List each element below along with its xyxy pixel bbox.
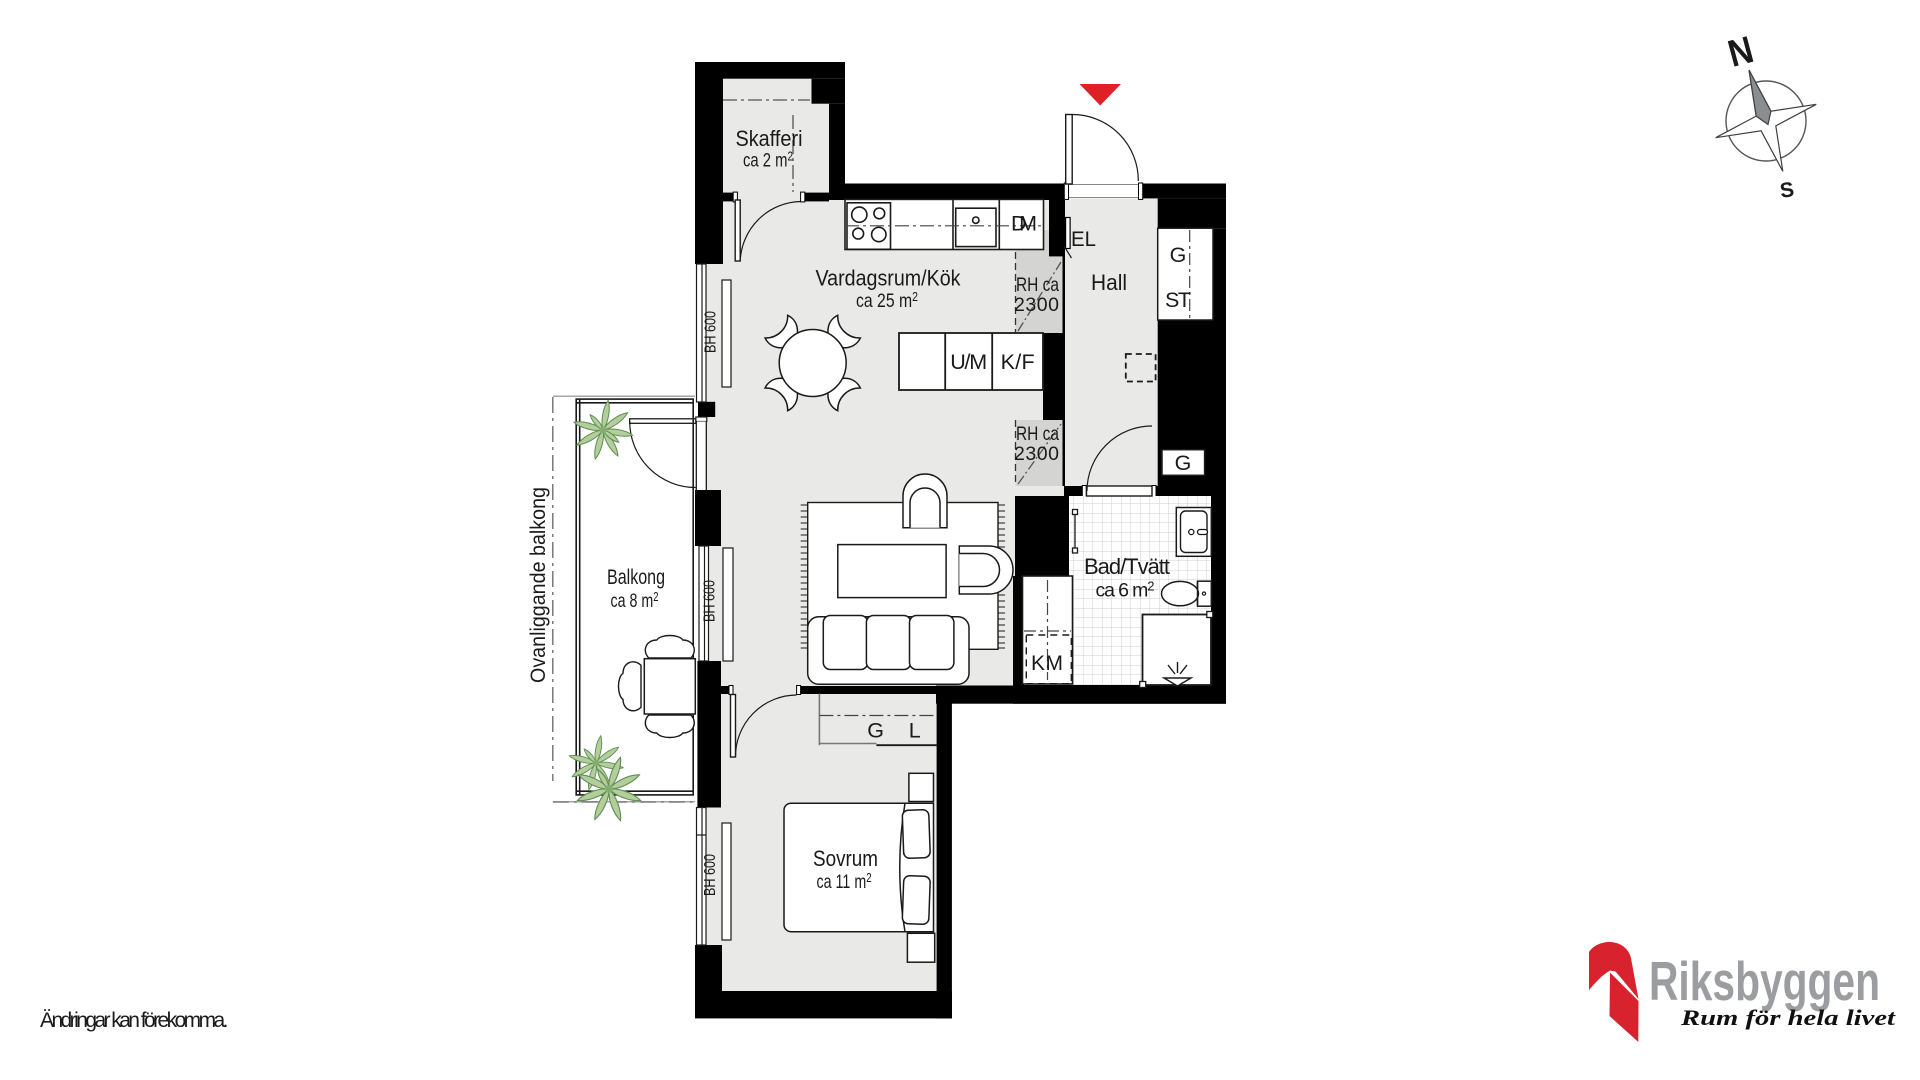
svg-text:BH 600: BH 600 (702, 854, 719, 896)
svg-text:Ändringar kan förekomma.: Ändringar kan förekomma. (40, 1009, 229, 1032)
svg-text:Ovanliggande balkong: Ovanliggande balkong (526, 487, 550, 683)
svg-text:ca 8 m2: ca 8 m2 (611, 589, 659, 612)
svg-text:Vardagsrum/Kök: Vardagsrum/Kök (816, 266, 962, 291)
svg-text:EL: EL (1071, 227, 1096, 251)
svg-text:2300: 2300 (1014, 294, 1059, 316)
svg-text:K/F: K/F (1001, 350, 1035, 374)
svg-text:2300: 2300 (1014, 443, 1059, 465)
svg-text:Skafferi: Skafferi (736, 126, 803, 151)
svg-text:G: G (867, 719, 884, 743)
svg-text:ca 2 m2: ca 2 m2 (743, 149, 793, 172)
svg-text:G: G (1175, 451, 1192, 475)
svg-text:Rum för hela livet: Rum för hela livet (1680, 1005, 1896, 1030)
svg-text:G: G (1170, 243, 1187, 267)
svg-text:Balkong: Balkong (607, 565, 665, 589)
svg-text:Bad/Tvätt: Bad/Tvätt (1084, 554, 1170, 579)
svg-text:BH 600: BH 600 (703, 311, 720, 353)
svg-text:ca 11 m2: ca 11 m2 (817, 870, 872, 893)
svg-text:U/M: U/M (950, 350, 987, 374)
svg-text:ca 6 m2: ca 6 m2 (1096, 579, 1155, 602)
svg-text:RH ca: RH ca (1016, 423, 1059, 445)
svg-text:L: L (909, 719, 921, 743)
svg-text:Riksbyggen: Riksbyggen (1649, 950, 1880, 1012)
svg-text:KM: KM (1031, 652, 1063, 675)
svg-text:DM: DM (1011, 211, 1037, 235)
svg-text:RH ca: RH ca (1016, 274, 1059, 296)
svg-text:ca 25 m2: ca 25 m2 (856, 289, 918, 312)
svg-text:BH 600: BH 600 (702, 580, 719, 622)
svg-text:ST: ST (1165, 288, 1191, 312)
svg-text:Sovrum: Sovrum (813, 846, 878, 871)
svg-text:Hall: Hall (1091, 270, 1127, 295)
